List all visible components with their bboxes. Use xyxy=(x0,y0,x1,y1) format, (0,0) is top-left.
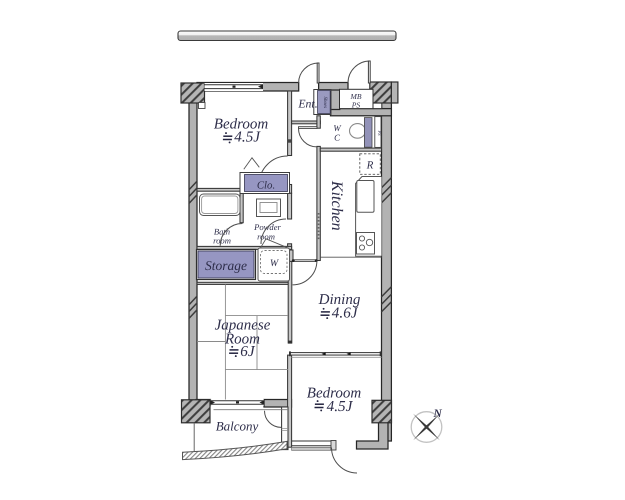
svg-text:4.5J: 4.5J xyxy=(327,398,354,415)
svg-text:4.5J: 4.5J xyxy=(234,129,261,146)
svg-text:6J: 6J xyxy=(240,343,256,360)
svg-text:Ent.: Ent. xyxy=(297,97,317,111)
svg-text:Shoes: Shoes xyxy=(322,96,328,108)
svg-text:room: room xyxy=(257,231,275,241)
svg-text:N: N xyxy=(433,408,443,420)
svg-text:C: C xyxy=(334,132,340,142)
svg-text:PS: PS xyxy=(377,130,382,137)
svg-text:Clo.: Clo. xyxy=(257,180,275,192)
svg-text:Balcony: Balcony xyxy=(216,419,259,434)
svg-text:Storage: Storage xyxy=(205,258,247,273)
svg-text:4.6J: 4.6J xyxy=(332,304,359,321)
svg-text:Kitchen: Kitchen xyxy=(328,180,345,231)
svg-text:R: R xyxy=(366,159,374,171)
svg-text:PS: PS xyxy=(351,100,361,109)
